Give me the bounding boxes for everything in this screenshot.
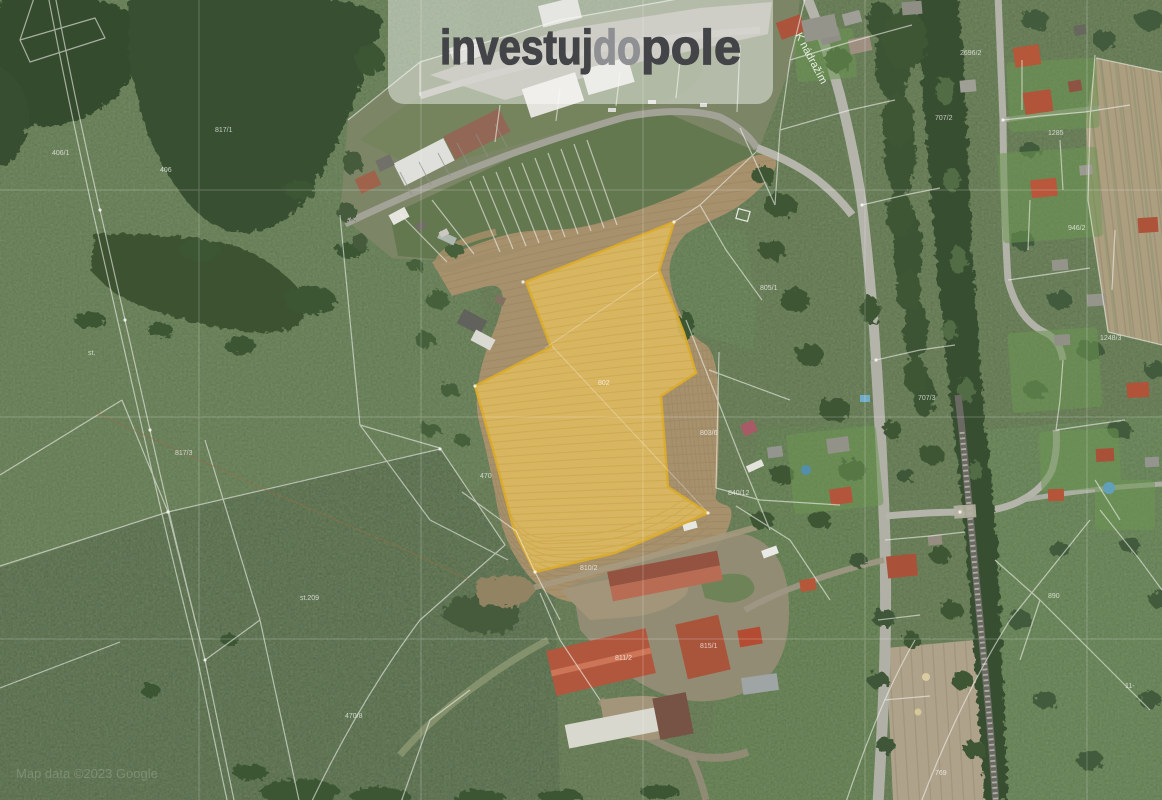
- svg-text:810/2: 810/2: [580, 565, 598, 572]
- svg-text:840/12: 840/12: [728, 490, 750, 497]
- svg-text:946/2: 946/2: [1068, 225, 1086, 232]
- svg-text:406: 406: [160, 167, 172, 174]
- svg-text:st.209: st.209: [300, 595, 319, 602]
- svg-text:707/3: 707/3: [918, 395, 936, 402]
- svg-text:st.: st.: [88, 350, 95, 357]
- svg-text:470: 470: [480, 473, 492, 480]
- svg-text:investuj: investuj: [440, 21, 593, 75]
- svg-text:do: do: [593, 21, 641, 75]
- svg-text:817/3: 817/3: [175, 450, 193, 457]
- svg-text:pole: pole: [641, 21, 741, 75]
- svg-text:802: 802: [598, 380, 610, 387]
- svg-text:470/8: 470/8: [345, 713, 363, 720]
- svg-text:811/2: 811/2: [615, 655, 632, 662]
- svg-text:1285: 1285: [1048, 130, 1064, 137]
- svg-text:2696/2: 2696/2: [960, 50, 982, 57]
- svg-text:817/1: 817/1: [215, 127, 233, 134]
- svg-text:707/2: 707/2: [935, 115, 953, 122]
- svg-text:805/1: 805/1: [760, 285, 778, 292]
- svg-text:769: 769: [935, 770, 947, 777]
- svg-text:803/6: 803/6: [700, 430, 718, 437]
- svg-text:Map data ©2023 Google: Map data ©2023 Google: [16, 766, 158, 781]
- svg-text:890: 890: [1048, 593, 1060, 600]
- svg-text:406/1: 406/1: [52, 150, 70, 157]
- svg-text:815/1: 815/1: [700, 643, 718, 650]
- svg-text:1248/3: 1248/3: [1100, 335, 1122, 342]
- svg-text:11-: 11-: [1125, 683, 1135, 690]
